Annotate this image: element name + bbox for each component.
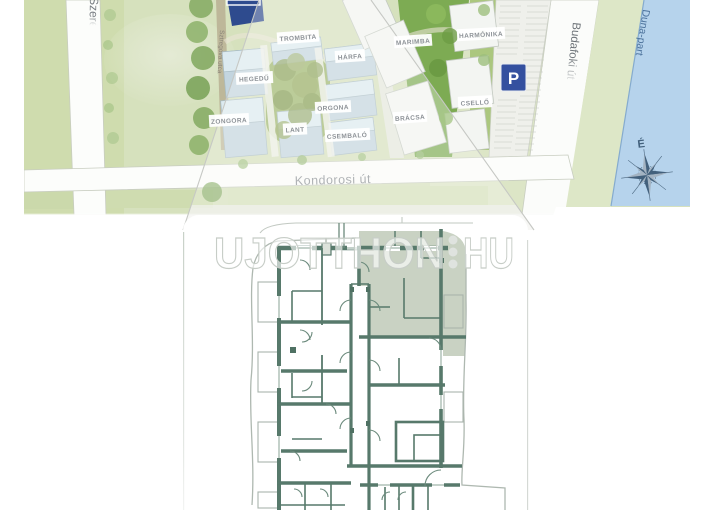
svg-text:HU: HU — [463, 229, 514, 278]
svg-text:P: P — [508, 69, 519, 88]
svg-text:UJOTTHON: UJOTTHON — [214, 229, 445, 278]
svg-text:Szerémi út: Szerémi út — [86, 0, 101, 55]
svg-text:É: É — [637, 137, 646, 151]
svg-text:LANT: LANT — [285, 127, 304, 135]
